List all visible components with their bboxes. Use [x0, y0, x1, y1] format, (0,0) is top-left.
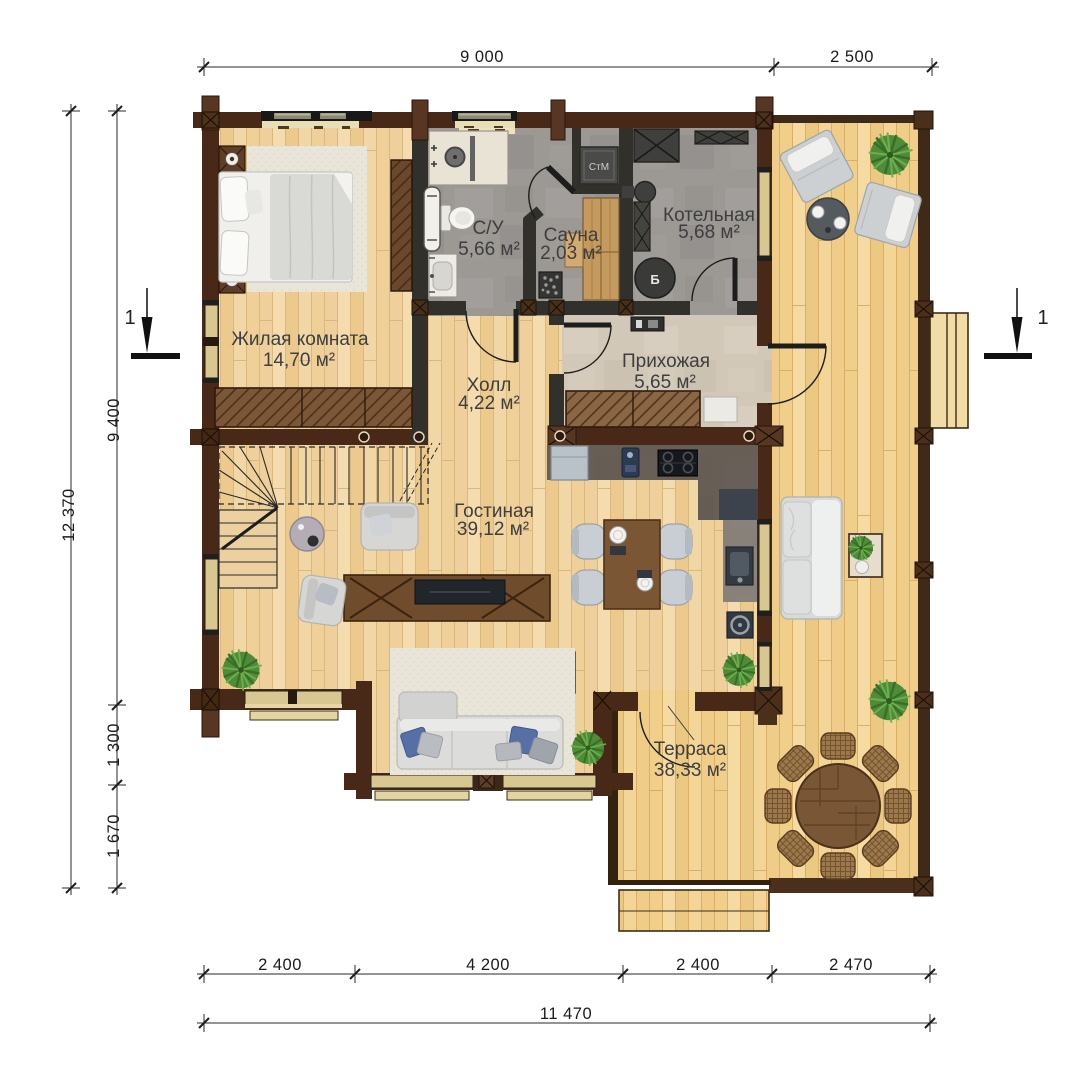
- svg-text:Б: Б: [650, 272, 659, 287]
- svg-text:14,70 м²: 14,70 м²: [263, 350, 335, 371]
- svg-text:4,22 м²: 4,22 м²: [458, 393, 520, 414]
- svg-text:2 400: 2 400: [676, 956, 720, 974]
- svg-text:1: 1: [124, 307, 135, 329]
- svg-text:11 470: 11 470: [540, 1005, 592, 1023]
- svg-text:СтМ: СтМ: [589, 162, 609, 173]
- svg-text:1 670: 1 670: [105, 814, 123, 858]
- svg-text:5,66 м²: 5,66 м²: [458, 239, 520, 260]
- svg-text:9 000: 9 000: [460, 48, 504, 66]
- svg-text:1 300: 1 300: [105, 723, 123, 767]
- svg-text:5,65 м²: 5,65 м²: [634, 372, 696, 393]
- svg-text:9 400: 9 400: [105, 398, 123, 442]
- svg-text:12 370: 12 370: [60, 488, 78, 541]
- svg-text:39,12 м²: 39,12 м²: [457, 519, 529, 540]
- svg-text:1: 1: [1037, 307, 1048, 329]
- svg-text:2 470: 2 470: [829, 956, 873, 974]
- svg-text:2,03 м²: 2,03 м²: [540, 243, 602, 264]
- svg-text:2 500: 2 500: [830, 48, 874, 66]
- svg-text:2 400: 2 400: [258, 956, 302, 974]
- svg-text:Прихожая: Прихожая: [622, 351, 710, 372]
- svg-text:Терраса: Терраса: [654, 739, 727, 760]
- svg-text:5,68 м²: 5,68 м²: [678, 222, 740, 243]
- svg-text:4 200: 4 200: [466, 956, 510, 974]
- svg-text:Жилая комната: Жилая комната: [231, 329, 369, 350]
- svg-text:С/У: С/У: [472, 218, 504, 239]
- svg-text:38,33 м²: 38,33 м²: [654, 760, 726, 781]
